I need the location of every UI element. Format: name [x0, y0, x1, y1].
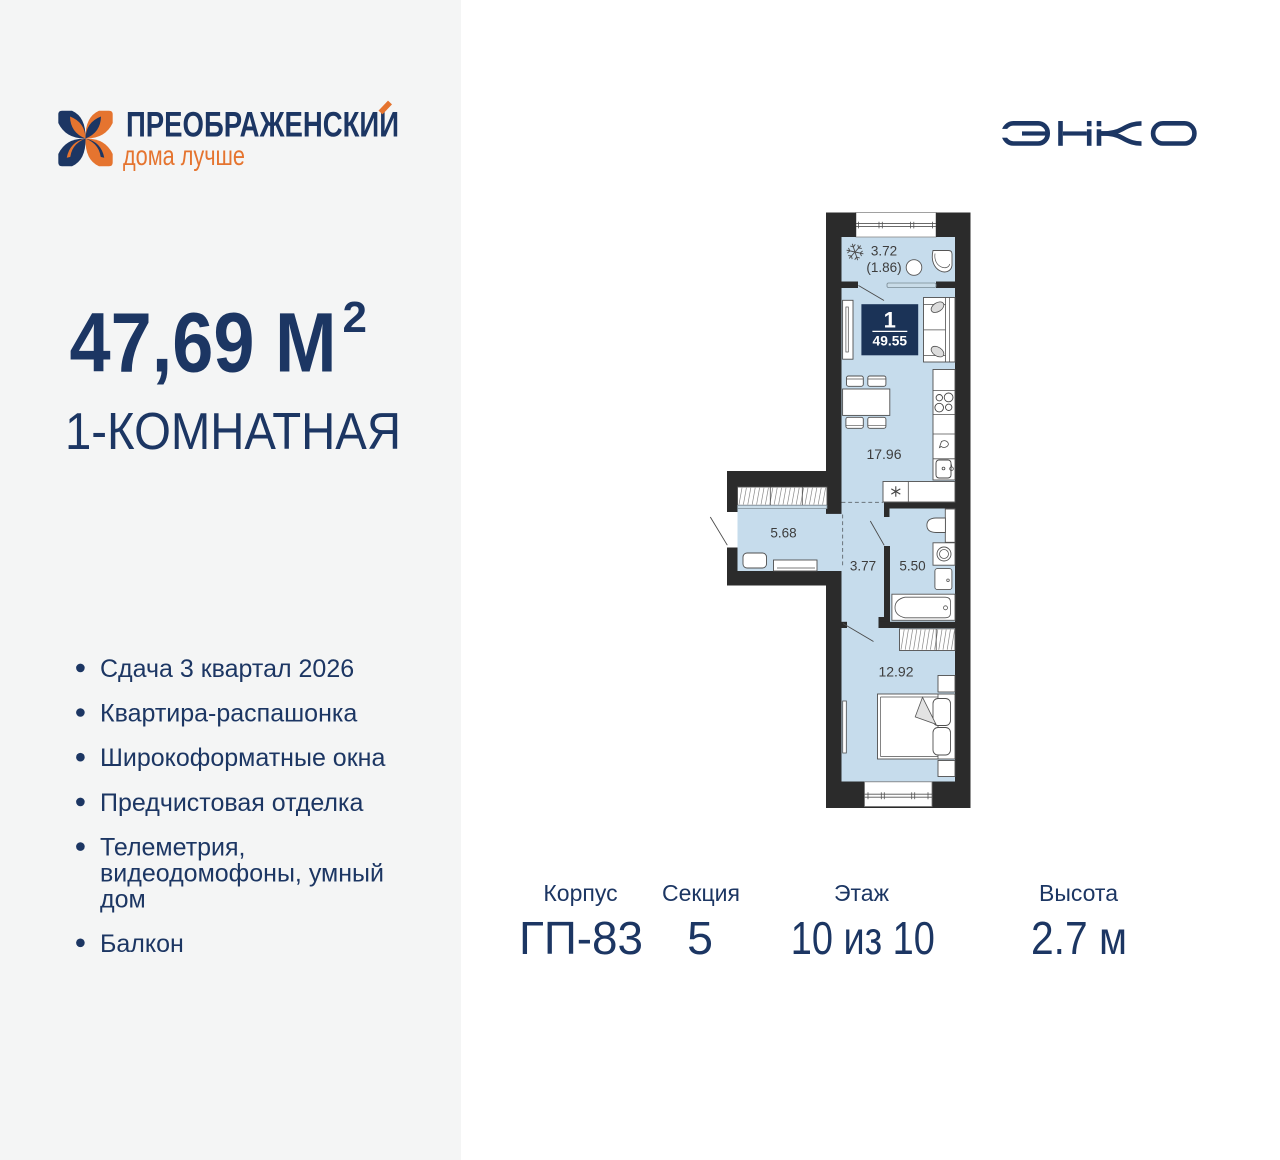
svg-text:17.96: 17.96	[866, 446, 901, 462]
svg-text:дом: дом	[100, 886, 146, 914]
svg-text:5.68: 5.68	[770, 525, 796, 540]
svg-text:Сдача 3 квартал 2026: Сдача 3 квартал 2026	[100, 655, 354, 683]
svg-text:Секция: Секция	[662, 880, 740, 906]
svg-text:1: 1	[884, 308, 896, 333]
svg-text:3.77: 3.77	[850, 558, 876, 573]
svg-text:2.7 м: 2.7 м	[1031, 912, 1127, 964]
svg-text:5.50: 5.50	[899, 558, 925, 573]
svg-text:12.92: 12.92	[878, 663, 913, 679]
svg-text:1-КОМНАТНАЯ: 1-КОМНАТНАЯ	[65, 403, 401, 461]
svg-text:ГП-83: ГП-83	[519, 912, 643, 964]
svg-text:Высота: Высота	[1039, 880, 1118, 906]
svg-text:дома лучше: дома лучше	[123, 140, 245, 171]
svg-text:Предчистовая отделка: Предчистовая отделка	[100, 789, 363, 817]
svg-text:10 из 10: 10 из 10	[791, 912, 935, 964]
svg-text:ПРЕОБРАЖЕНСКИИ: ПРЕОБРАЖЕНСКИИ	[126, 105, 399, 144]
svg-text:Корпус: Корпус	[543, 880, 617, 906]
svg-text:3.72: 3.72	[871, 243, 897, 258]
svg-text:Балкон: Балкон	[100, 930, 184, 958]
svg-text:49.55: 49.55	[873, 334, 908, 349]
svg-text:Этаж: Этаж	[834, 880, 890, 906]
svg-text:47,69 М: 47,69 М	[70, 296, 337, 390]
svg-text:Телеметрия,: Телеметрия,	[100, 834, 246, 862]
svg-text:(1.86): (1.86)	[866, 260, 901, 275]
svg-text:2: 2	[343, 293, 367, 342]
svg-text:Квартира-распашонка: Квартира-распашонка	[100, 700, 357, 728]
svg-text:Широкоформатные окна: Широкоформатные окна	[100, 744, 385, 772]
svg-text:5: 5	[687, 912, 713, 964]
svg-text:видеодомофоны, умный: видеодомофоны, умный	[100, 860, 384, 888]
